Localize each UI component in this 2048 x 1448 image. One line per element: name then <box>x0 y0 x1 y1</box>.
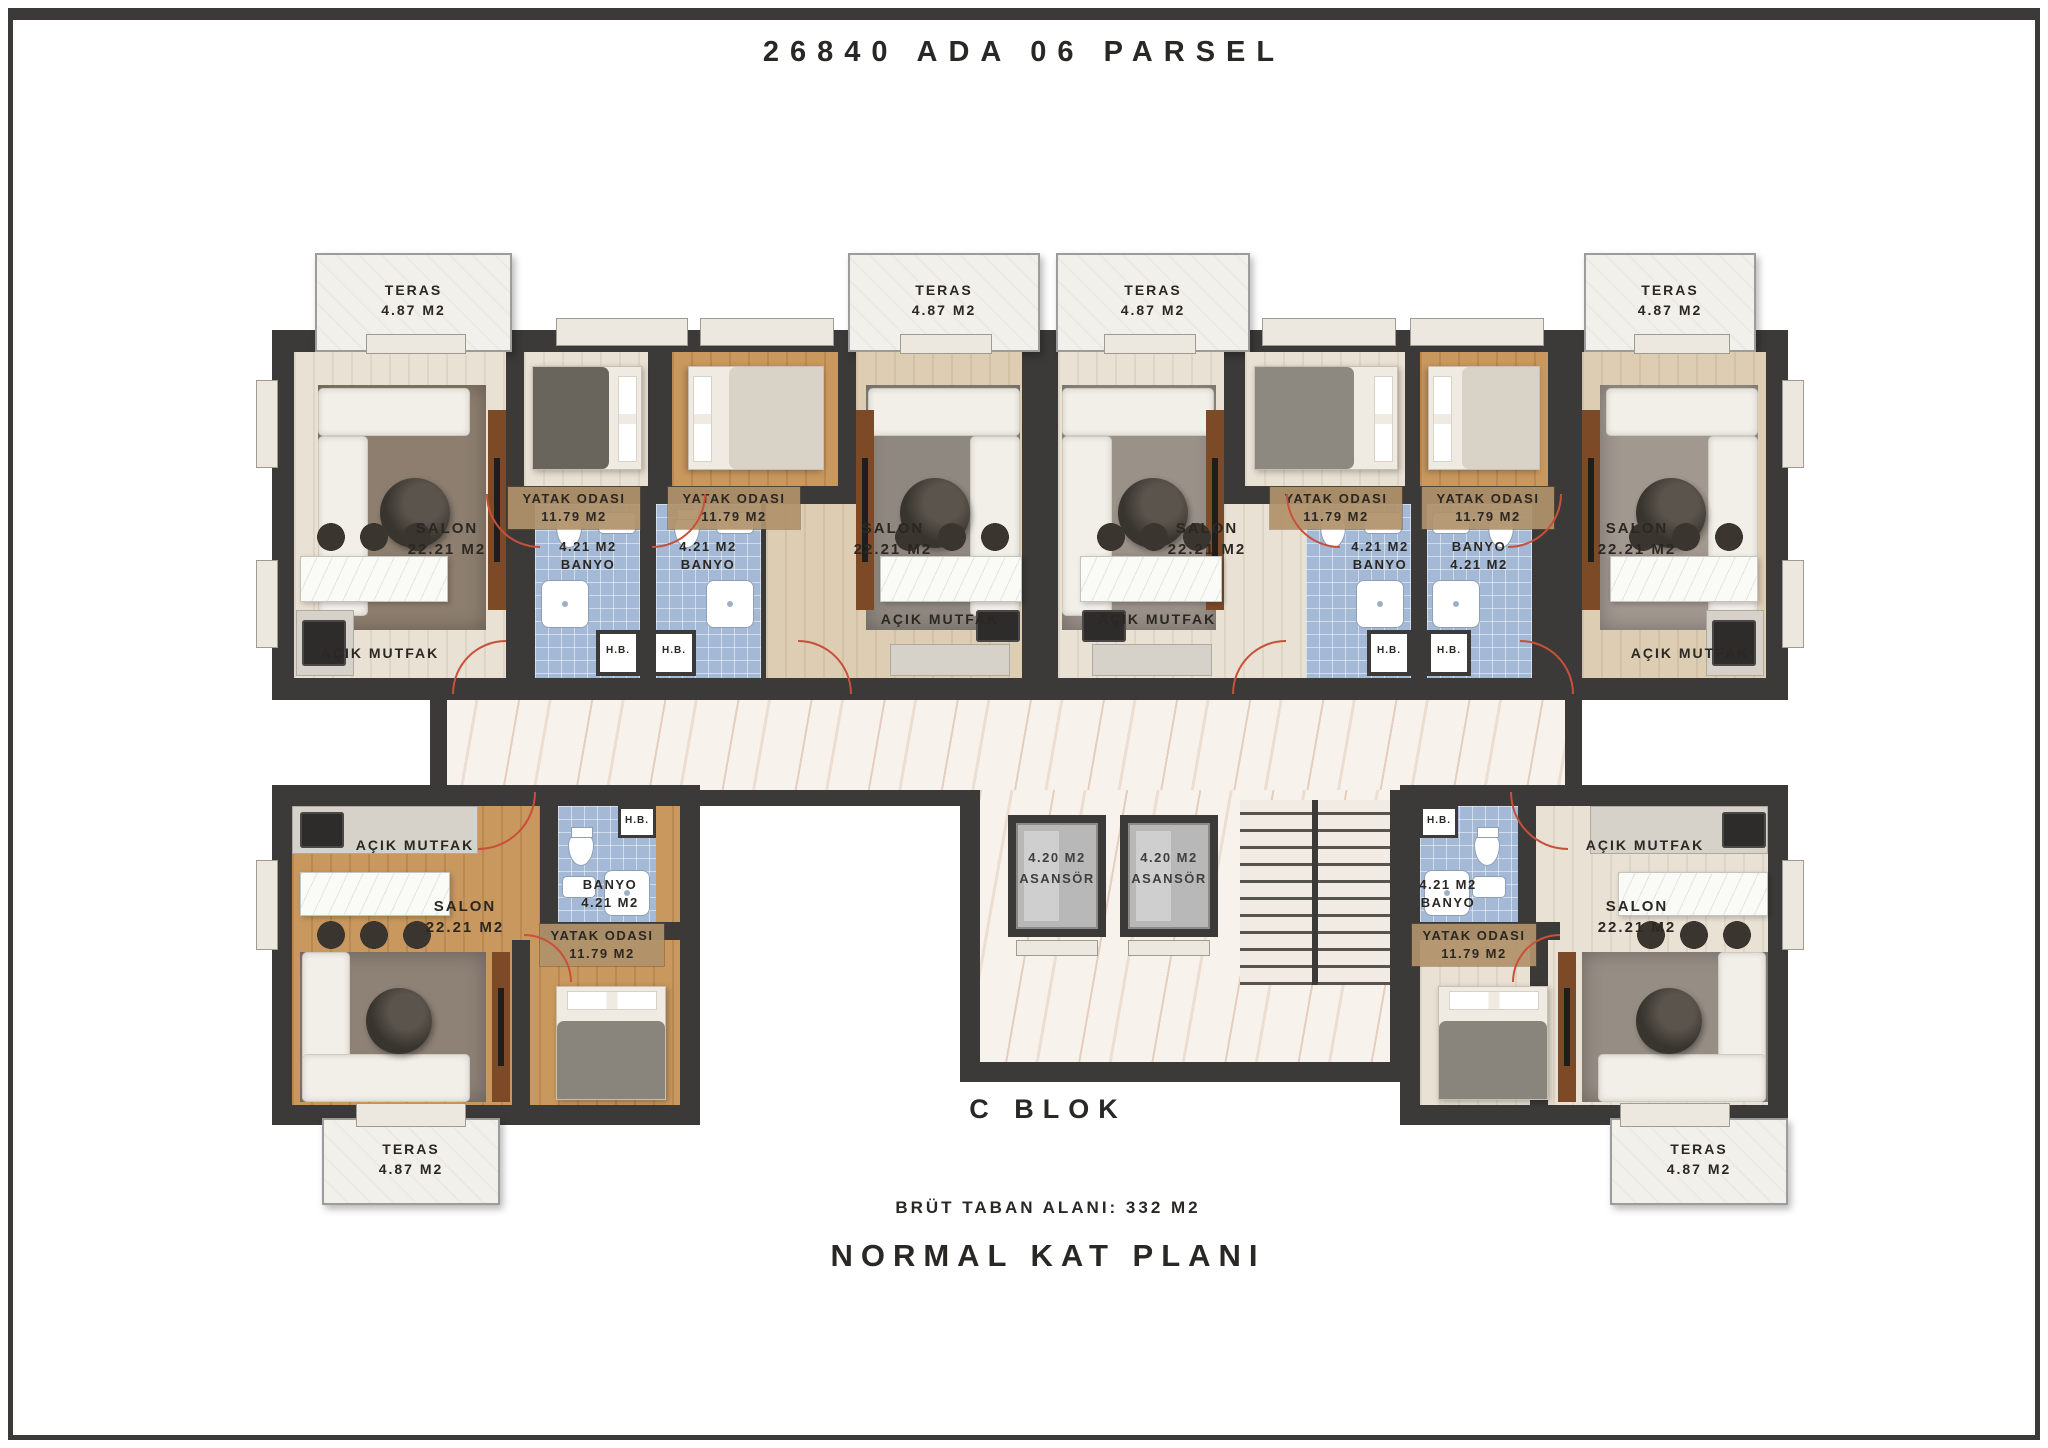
salon-label: SALON22.21 M2 <box>1122 518 1292 560</box>
hb-label: H.B. <box>1427 644 1471 658</box>
teras-label: TERAS4.87 M2 <box>315 281 512 320</box>
room-name: H.B. <box>1427 644 1471 658</box>
kitchen-island <box>300 556 448 602</box>
sofa <box>1606 388 1758 436</box>
banyo-label: 4.21 M2BANYO <box>538 538 638 574</box>
sofa <box>1062 388 1214 436</box>
room-name: BANYO <box>658 556 758 574</box>
window <box>700 318 834 346</box>
bed <box>1254 366 1398 470</box>
terrace-door <box>1104 334 1196 354</box>
tv-cabinet <box>1582 410 1600 610</box>
asansor-label: 4.20 M2ASANSÖR <box>1008 848 1106 890</box>
acik-mutfak-label: AÇIK MUTFAK <box>1560 836 1730 856</box>
hb-label: H.B. <box>596 644 640 658</box>
hb-label: H.B. <box>618 814 656 828</box>
terrace-door <box>1620 1103 1730 1127</box>
acik-mutfak-label: AÇIK MUTFAK <box>300 644 460 664</box>
window <box>256 860 278 950</box>
kitchen-island <box>1610 556 1758 602</box>
room-name: H.B. <box>596 644 640 658</box>
tv-cabinet <box>1558 952 1576 1102</box>
sofa <box>868 388 1020 436</box>
tv-cabinet <box>856 410 874 610</box>
room-area: 4.87 M2 <box>1056 301 1250 321</box>
bed <box>556 986 666 1100</box>
window <box>1782 560 1804 648</box>
sofa <box>302 1054 470 1102</box>
bed <box>1438 986 1548 1100</box>
room-name: BANYO <box>1330 556 1430 574</box>
acik-mutfak-label: AÇIK MUTFAK <box>330 836 500 856</box>
room-name: SALON <box>808 518 978 539</box>
window <box>1262 318 1396 346</box>
shower <box>541 580 589 628</box>
kitchen-island <box>1080 556 1222 602</box>
room-area: 4.87 M2 <box>315 301 512 321</box>
gross-floor-area: BRÜT TABAN ALANI: 332 M2 <box>748 1198 1348 1218</box>
salon-label: SALON22.21 M2 <box>808 518 978 560</box>
elevator-sill <box>1128 940 1210 956</box>
room-name: TERAS <box>1056 281 1250 301</box>
window <box>1410 318 1544 346</box>
room-name: ASANSÖR <box>1120 869 1218 890</box>
salon-label: SALON22.21 M2 <box>380 896 550 938</box>
coffee-table <box>366 988 432 1054</box>
room-area: 4.20 M2 <box>1008 848 1106 869</box>
terrace-door <box>900 334 992 354</box>
room-name: AÇIK MUTFAK <box>300 644 460 664</box>
kitchen-counter <box>1092 644 1212 676</box>
room-name: H.B. <box>618 814 656 828</box>
room-name: YATAK ODASI <box>544 927 660 945</box>
teras-label: TERAS4.87 M2 <box>322 1140 500 1179</box>
terrace-door <box>1634 334 1730 354</box>
room-name: BANYO <box>560 876 660 894</box>
salon-label: SALON22.21 M2 <box>1552 896 1722 938</box>
block-name: C BLOK <box>748 1094 1348 1125</box>
plan-type: NORMAL KAT PLANI <box>748 1238 1348 1274</box>
room-area: 4.20 M2 <box>1120 848 1218 869</box>
room-name: TERAS <box>1610 1140 1788 1160</box>
room-name: SALON <box>1122 518 1292 539</box>
banyo-label: 4.21 M2BANYO <box>1330 538 1430 574</box>
banyo-label: BANYO4.21 M2 <box>560 876 660 912</box>
teras-label: TERAS4.87 M2 <box>1056 281 1250 320</box>
acik-mutfak-label: AÇIK MUTFAK <box>855 610 1025 630</box>
wall <box>1565 678 1582 790</box>
tv-cabinet <box>492 952 510 1102</box>
room-area: 4.87 M2 <box>1584 301 1756 321</box>
room-name: TERAS <box>848 281 1040 301</box>
page-title: 26840 ADA 06 PARSEL <box>0 36 2048 69</box>
window <box>256 380 278 468</box>
window <box>256 560 278 648</box>
room-name: SALON <box>1552 518 1722 539</box>
wall <box>960 790 980 1082</box>
room-name: SALON <box>1552 896 1722 917</box>
window <box>1782 860 1804 950</box>
floor-plan-canvas: 26840 ADA 06 PARSEL <box>0 0 2048 1448</box>
acik-mutfak-label: AÇIK MUTFAK <box>1610 644 1770 664</box>
elevator-sill <box>1016 940 1098 956</box>
room-name: TERAS <box>315 281 512 301</box>
wall <box>960 1062 1410 1082</box>
room-area: 22.21 M2 <box>1122 539 1292 560</box>
salon-label: SALON22.21 M2 <box>1552 518 1722 560</box>
shower <box>1356 580 1404 628</box>
room-name: H.B. <box>1367 644 1411 658</box>
asansor-label: 4.20 M2ASANSÖR <box>1120 848 1218 890</box>
room-name: H.B. <box>1420 814 1458 828</box>
teras-label: TERAS4.87 M2 <box>848 281 1040 320</box>
room-area: 4.87 M2 <box>1610 1160 1788 1180</box>
room-name: AÇIK MUTFAK <box>330 836 500 856</box>
terrace-door <box>366 334 466 354</box>
room-area: 22.21 M2 <box>1552 917 1722 938</box>
staircase <box>1240 800 1390 985</box>
corridor-floor <box>445 700 1565 790</box>
room-name: AÇIK MUTFAK <box>855 610 1025 630</box>
room-area: 4.21 M2 <box>1429 556 1529 574</box>
room-name: AÇIK MUTFAK <box>1072 610 1242 630</box>
room-name: TERAS <box>1584 281 1756 301</box>
room-area: 4.21 M2 <box>1330 538 1430 556</box>
room-name: AÇIK MUTFAK <box>1610 644 1770 664</box>
shower <box>706 580 754 628</box>
teras-label: TERAS4.87 M2 <box>1610 1140 1788 1179</box>
hb-label: H.B. <box>652 644 696 658</box>
room-area: 4.21 M2 <box>1398 876 1498 894</box>
room-area: 22.21 M2 <box>808 539 978 560</box>
room-area: 4.87 M2 <box>322 1160 500 1180</box>
acik-mutfak-label: AÇIK MUTFAK <box>1072 610 1242 630</box>
room-name: AÇIK MUTFAK <box>1560 836 1730 856</box>
bed <box>688 366 824 470</box>
wall <box>430 678 447 790</box>
sofa <box>1598 1054 1766 1102</box>
window <box>1782 380 1804 468</box>
bed <box>532 366 642 470</box>
room-name: ASANSÖR <box>1008 869 1106 890</box>
bed <box>1428 366 1540 470</box>
room-name: TERAS <box>322 1140 500 1160</box>
hb-label: H.B. <box>1367 644 1411 658</box>
room-area: 11.79 M2 <box>1416 945 1532 963</box>
coffee-table <box>1636 988 1702 1054</box>
sofa <box>318 388 470 436</box>
room-name: BANYO <box>538 556 638 574</box>
hb-label: H.B. <box>1420 814 1458 828</box>
teras-label: TERAS4.87 M2 <box>1584 281 1756 320</box>
room-name: H.B. <box>652 644 696 658</box>
terrace-door <box>356 1103 466 1127</box>
banyo-label: 4.21 M2BANYO <box>1398 876 1498 912</box>
room-area: 22.21 M2 <box>1552 539 1722 560</box>
window <box>556 318 688 346</box>
room-area: 4.21 M2 <box>560 894 660 912</box>
kitchen-island <box>880 556 1022 602</box>
room-area: 4.21 M2 <box>538 538 638 556</box>
room-area: 22.21 M2 <box>362 539 532 560</box>
room-area: 4.87 M2 <box>848 301 1040 321</box>
kitchen-counter <box>890 644 1010 676</box>
room-name: SALON <box>380 896 550 917</box>
shower <box>1432 580 1480 628</box>
room-name: YATAK ODASI <box>1416 927 1532 945</box>
wall <box>700 790 980 806</box>
room-name: BANYO <box>1398 894 1498 912</box>
